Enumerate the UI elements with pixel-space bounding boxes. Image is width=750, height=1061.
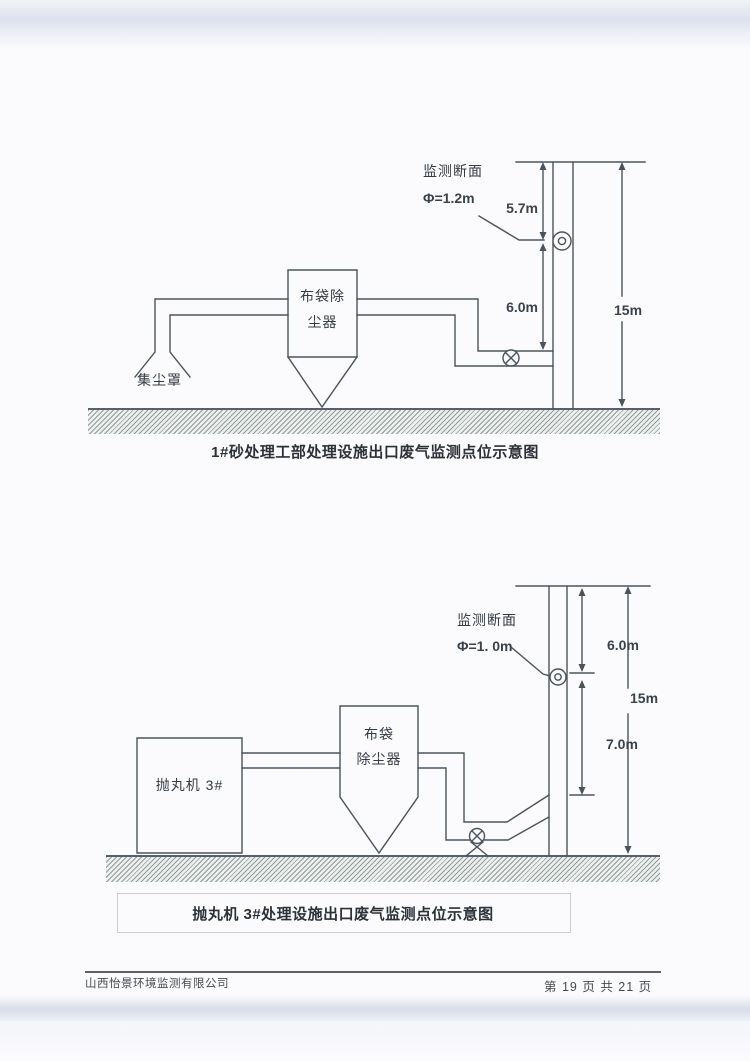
stack-1 xyxy=(516,162,645,408)
dim-label-5-7m: 5.7m xyxy=(496,200,538,217)
monitoring-point-icon-1 xyxy=(553,232,571,250)
shot-blast-machine xyxy=(137,738,242,853)
scanned-report-page: 监测断面 Φ=1.2m 5.7m 6.0m 15m 布袋除 尘器 集尘罩 1#砂… xyxy=(0,0,750,1061)
dimension-arrow-15m-d1 xyxy=(619,162,626,407)
monitor-section-label-2: 监测断面 xyxy=(457,612,517,629)
dust-hood-label: 集尘罩 xyxy=(137,372,182,389)
dim-label-6-0m-d1: 6.0m xyxy=(496,299,538,316)
shot-blast-machine-label: 抛丸机 3# xyxy=(137,777,242,794)
dim-label-15m-d1: 15m xyxy=(614,302,642,319)
monitor-diameter-1: Φ=1.2m xyxy=(423,190,475,207)
monitoring-point-icon-2 xyxy=(550,669,566,685)
footer-rule xyxy=(85,971,661,973)
bag-filter-label-2-line1: 布袋 xyxy=(340,726,418,743)
bag-filter-label-1-line2: 尘器 xyxy=(288,314,357,331)
leader-line-1 xyxy=(479,216,544,240)
dim-label-15m-d2: 15m xyxy=(630,690,658,707)
footer-company: 山西怡景环境监测有限公司 xyxy=(85,975,229,991)
monitor-diameter-2: Φ=1. 0m xyxy=(457,638,512,655)
dust-hood-icon xyxy=(135,299,288,377)
dim-label-7-0m: 7.0m xyxy=(606,736,638,753)
diagram1-caption: 1#砂处理工部处理设施出口废气监测点位示意图 xyxy=(3,441,747,462)
valve-icon xyxy=(503,350,519,366)
bag-filter-label-2-line2: 除尘器 xyxy=(340,751,418,768)
fan-icon xyxy=(466,829,488,857)
connecting-duct-2 xyxy=(242,753,340,768)
footer-page-number: 第 19 页 共 21 页 xyxy=(544,976,652,995)
dimension-arrow-5-7m xyxy=(540,162,547,240)
stack-2 xyxy=(516,586,650,855)
dimension-arrow-6-0m-d1 xyxy=(540,243,547,350)
dimension-arrow-15m-d2 xyxy=(625,586,632,854)
dim-label-6-0m-d2: 6.0m xyxy=(607,637,639,654)
leader-line-2 xyxy=(511,647,550,676)
monitor-section-label-1: 监测断面 xyxy=(423,163,483,180)
dimension-arrow-6-0m-d2 xyxy=(579,588,586,672)
diagram2-caption: 抛丸机 3#处理设施出口废气监测点位示意图 xyxy=(117,903,569,924)
outlet-duct-2 xyxy=(418,753,549,840)
bag-filter-label-1-line1: 布袋除 xyxy=(288,288,357,305)
dimension-arrow-7-0m xyxy=(579,680,586,795)
